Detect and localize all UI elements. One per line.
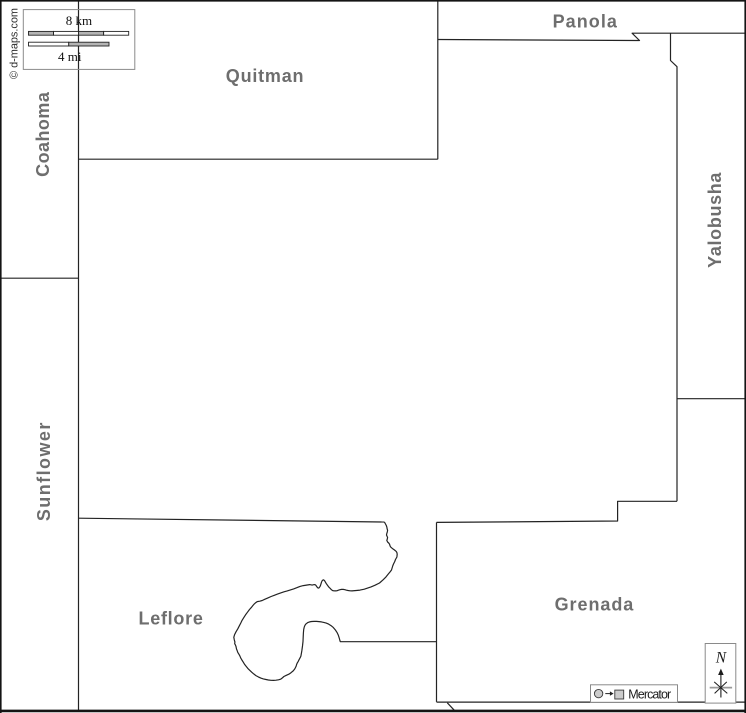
svg-text:Mercator: Mercator: [628, 687, 671, 701]
svg-text:Grenada: Grenada: [555, 595, 635, 615]
svg-text:Leflore: Leflore: [139, 608, 203, 628]
svg-text:© d-maps.com: © d-maps.com: [9, 8, 21, 79]
svg-text:Quitman: Quitman: [226, 66, 304, 86]
svg-text:Coahoma: Coahoma: [33, 91, 53, 177]
svg-text:N: N: [715, 650, 728, 667]
svg-text:Sunflower: Sunflower: [34, 423, 54, 522]
svg-text:Panola: Panola: [553, 12, 618, 32]
svg-text:Yalobusha: Yalobusha: [705, 172, 725, 268]
svg-text:4 mi: 4 mi: [58, 49, 82, 64]
svg-text:8 km: 8 km: [66, 13, 92, 28]
